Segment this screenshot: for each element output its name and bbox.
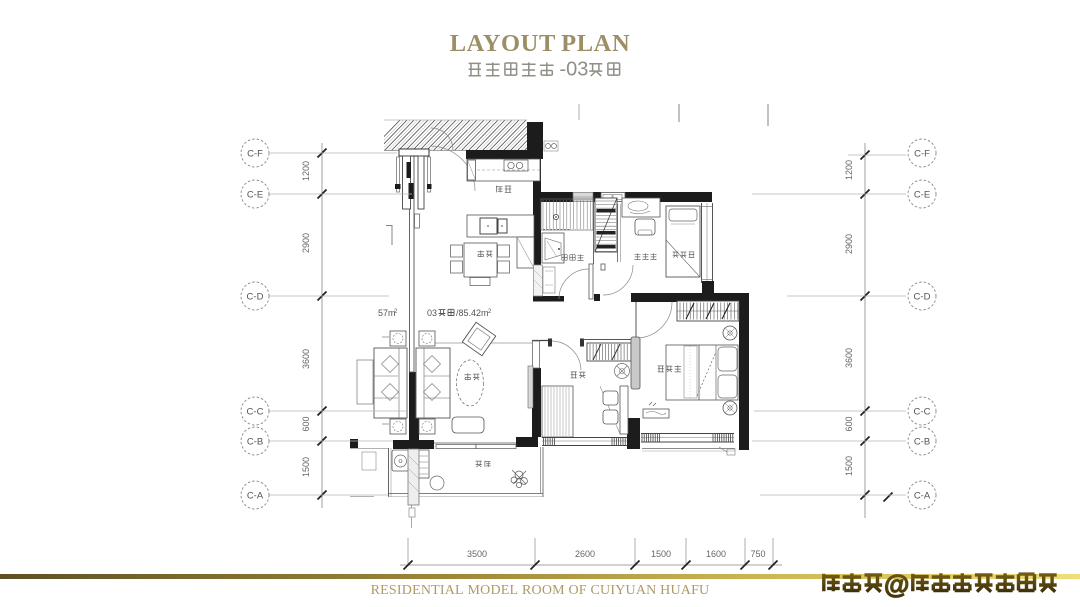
svg-text:@: @ [884,569,909,599]
